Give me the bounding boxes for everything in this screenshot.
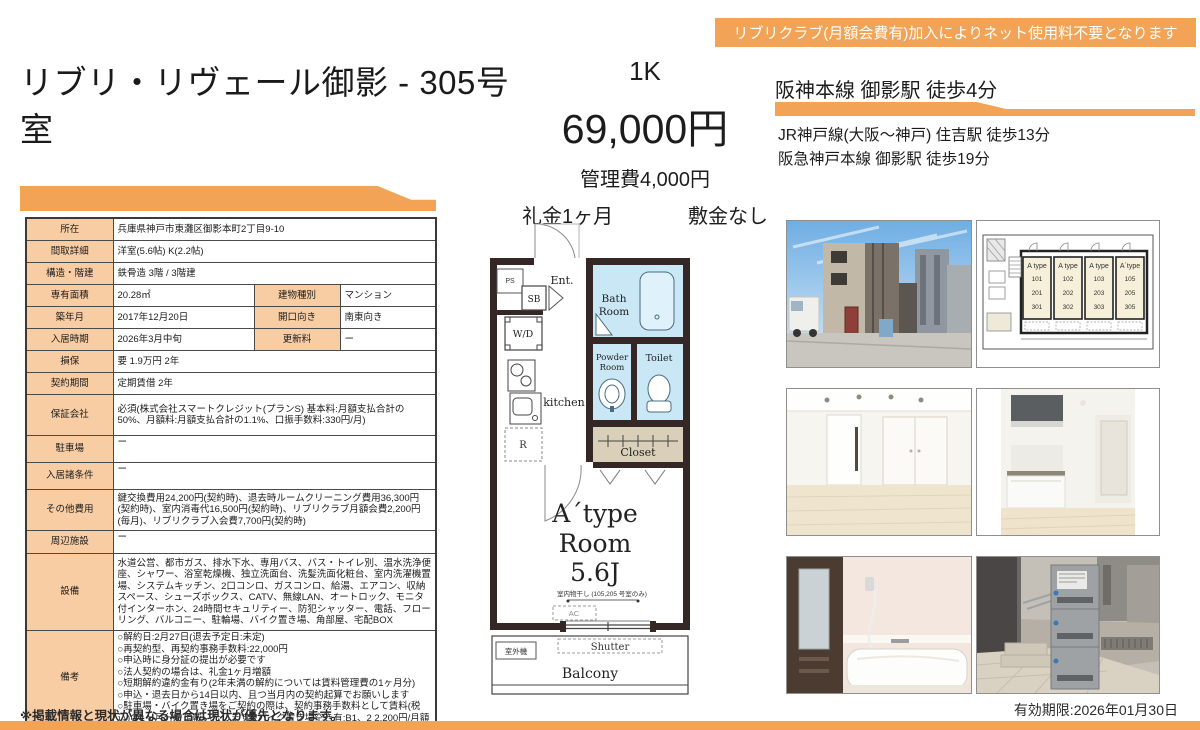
- stove: [508, 360, 535, 391]
- row-label: 駐車場: [26, 436, 113, 463]
- svg-text:203: 203: [1094, 290, 1105, 297]
- table-row: 保証会社 必須(株式会社スマートクレジット(プランS) 基本料:月額支払合計の5…: [26, 395, 436, 436]
- balcony: 室外機 Shutter Balcony: [492, 636, 688, 694]
- row-label: 所在: [26, 218, 113, 241]
- siteplan-unit-type: A´type: [1120, 263, 1140, 270]
- row-label: 専有面積: [26, 285, 113, 307]
- row-label: 周辺施設: [26, 531, 113, 554]
- bath-label: Bath: [602, 293, 627, 305]
- promo-banner: リブリクラブ(月額会費有)加入によりネット使用料不要となります: [715, 18, 1196, 47]
- room-size-label: 5.6J: [570, 558, 620, 587]
- row-label: 保証会社: [26, 395, 113, 436]
- refrigerator-space: R: [505, 428, 542, 461]
- svg-text:302: 302: [1063, 304, 1074, 311]
- table-row: 入居諸条件 ー: [26, 463, 436, 490]
- row-label: 建物種別: [254, 285, 340, 307]
- r-label: R: [519, 440, 527, 451]
- powder-label: Powder: [596, 353, 629, 363]
- bottom-orange-bar: [0, 721, 1200, 730]
- room-type-label: A´type: [551, 499, 638, 528]
- row-value: ー: [340, 329, 436, 351]
- svg-text:室内物干し (105,205 号室のみ): 室内物干し (105,205 号室のみ): [557, 589, 647, 598]
- row-value: ー: [113, 436, 436, 463]
- expiry-date: 有効期限:2026年01月30日: [1014, 700, 1178, 720]
- entrance-label: Ent.: [550, 274, 573, 287]
- pipe-space: PS: [497, 269, 523, 293]
- row-value: 鉄骨造 3階 / 3階建: [113, 263, 436, 285]
- photo-bathroom: [786, 556, 972, 694]
- svg-text:301: 301: [1032, 304, 1043, 311]
- row-value: 必須(株式会社スマートクレジット(プランS) 基本料:月額支払合計の50%、月額…: [113, 395, 436, 436]
- row-label: 入居諸条件: [26, 463, 113, 490]
- access-sub-lines: JR神戸線(大阪〜神戸) 住吉駅 徒歩13分 阪急神戸本線 御影駅 徒歩19分: [778, 124, 1050, 172]
- outdoor-unit-label: 室外機: [505, 646, 528, 656]
- table-row: 契約期間 定期賃借 2年: [26, 373, 436, 395]
- entrance-door-arc: [535, 224, 579, 258]
- row-value: 2026年3月中旬: [113, 329, 254, 351]
- closet-label: Closet: [620, 446, 656, 459]
- row-label: 契約期間: [26, 373, 113, 395]
- toilet-label: Toilet: [646, 353, 673, 364]
- table-row: 構造・階建 鉄骨造 3階 / 3階建: [26, 263, 436, 285]
- svg-text:105: 105: [1125, 276, 1136, 283]
- floor-plan: PS SB Ent. W/D kitchen R Bath Room Powde…: [486, 222, 708, 700]
- toilet-fixture: [647, 375, 671, 412]
- sb-label: SB: [528, 295, 541, 305]
- svg-text:303: 303: [1094, 304, 1105, 311]
- closet-door-marks: [600, 470, 665, 484]
- row-label: 構造・階建: [26, 263, 113, 285]
- table-row: 周辺施設 ー: [26, 531, 436, 554]
- row-label: 築年月: [26, 307, 113, 329]
- management-fee: 管理費4,000円: [518, 163, 772, 192]
- table-row: 間取詳細 洋室(5.6帖) K(2.2帖): [26, 241, 436, 263]
- title-ribbon: [20, 186, 436, 211]
- window: [566, 621, 650, 631]
- washer-dryer: W/D: [505, 317, 542, 350]
- table-row: 駐車場 ー: [26, 436, 436, 463]
- row-label: その他費用: [26, 490, 113, 531]
- row-value: マンション: [340, 285, 436, 307]
- indoor-drying-note: 室内物干し (105,205 号室のみ): [557, 589, 647, 603]
- row-value: 20.28㎡: [113, 285, 254, 307]
- table-row: 築年月 2017年12月20日 開口向き 南東向き: [26, 307, 436, 329]
- access-sub-line: JR神戸線(大阪〜神戸) 住吉駅 徒歩13分: [778, 124, 1050, 148]
- bath-label: Room: [599, 306, 630, 318]
- svg-text:103: 103: [1094, 276, 1105, 283]
- row-label: 入居時期: [26, 329, 113, 351]
- photo-delivery-boxes: [976, 556, 1160, 694]
- row-value: 2017年12月20日: [113, 307, 254, 329]
- photo-unit-siteplan: A type A type A type A´type 101 201 301 …: [976, 220, 1160, 368]
- row-label: 設備: [26, 554, 113, 631]
- row-label: 損保: [26, 351, 113, 373]
- svg-text:205: 205: [1125, 290, 1136, 297]
- row-value: 兵庫県神戸市東灘区御影本町2丁目9-10: [113, 218, 436, 241]
- price-block: 1K 69,000円 管理費4,000円 礼金1ヶ月 敷金なし: [518, 56, 772, 229]
- room-word-label: Room: [559, 529, 632, 558]
- kitchen-sink: [510, 393, 541, 424]
- svg-text:202: 202: [1063, 290, 1074, 297]
- ps-label: PS: [505, 278, 515, 285]
- row-value: 鍵交換費用24,200円(契約時)、退去時ルームクリーニング費用36,300円(…: [113, 490, 436, 531]
- page-title: リブリ・リヴェール御影 - 305号室: [20, 60, 525, 154]
- promo-banner-text: リブリクラブ(月額会費有)加入によりネット使用料不要となります: [733, 22, 1177, 43]
- row-value: 要 1.9万円 2年: [113, 351, 436, 373]
- row-value: 洋室(5.6帖) K(2.2帖): [113, 241, 436, 263]
- svg-text:102: 102: [1063, 276, 1074, 283]
- row-label: 間取詳細: [26, 241, 113, 263]
- access-main-line: 阪神本線 御影駅 徒歩4分: [775, 74, 997, 103]
- property-details-table: 所在 兵庫県神戸市東灘区御影本町2丁目9-10 間取詳細 洋室(5.6帖) K(…: [25, 217, 437, 727]
- photo-building-exterior: [786, 220, 972, 368]
- balcony-label: Balcony: [562, 666, 618, 682]
- svg-text:305: 305: [1125, 304, 1136, 311]
- row-label: 更新料: [254, 329, 340, 351]
- row-value: 水道公営、都市ガス、排水下水、専用バス、バス・トイレ別、温水洗浄便座、シャワー、…: [113, 554, 436, 631]
- powder-label: Room: [600, 363, 625, 373]
- table-row: 入居時期 2026年3月中旬 更新料 ー: [26, 329, 436, 351]
- layout-type: 1K: [518, 56, 772, 87]
- wd-label: W/D: [513, 329, 534, 340]
- table-row: 損保 要 1.9万円 2年: [26, 351, 436, 373]
- shutter-label: Shutter: [591, 642, 630, 653]
- access-sub-line: 阪急神戸本線 御影駅 徒歩19分: [778, 148, 1050, 172]
- row-value: ー: [113, 531, 436, 554]
- access-ribbon: [775, 102, 1195, 116]
- row-value: 定期賃借 2年: [113, 373, 436, 395]
- svg-text:201: 201: [1032, 290, 1043, 297]
- row-value: ー: [113, 463, 436, 490]
- photo-kitchen: [976, 388, 1160, 536]
- table-row: 所在 兵庫県神戸市東灘区御影本町2丁目9-10: [26, 218, 436, 241]
- kitchen-label: kitchen: [543, 396, 584, 409]
- siteplan-unit-type: A type: [1089, 263, 1109, 270]
- shoe-box: SB: [522, 286, 563, 310]
- table-row: 設備 水道公営、都市ガス、排水下水、専用バス、バス・トイレ別、温水洗浄便座、シャ…: [26, 554, 436, 631]
- siteplan-unit-type: A type: [1058, 263, 1078, 270]
- ac-box: AC: [553, 606, 596, 620]
- table-row: その他費用 鍵交換費用24,200円(契約時)、退去時ルームクリーニング費用36…: [26, 490, 436, 531]
- table-row: 専有面積 20.28㎡ 建物種別 マンション: [26, 285, 436, 307]
- row-label: 開口向き: [254, 307, 340, 329]
- row-value: 南東向き: [340, 307, 436, 329]
- svg-text:AC: AC: [569, 609, 580, 618]
- rent-amount: 69,000円: [518, 95, 772, 155]
- photo-interior-room: [786, 388, 972, 536]
- siteplan-unit-type: A type: [1027, 263, 1047, 270]
- svg-text:101: 101: [1032, 276, 1043, 283]
